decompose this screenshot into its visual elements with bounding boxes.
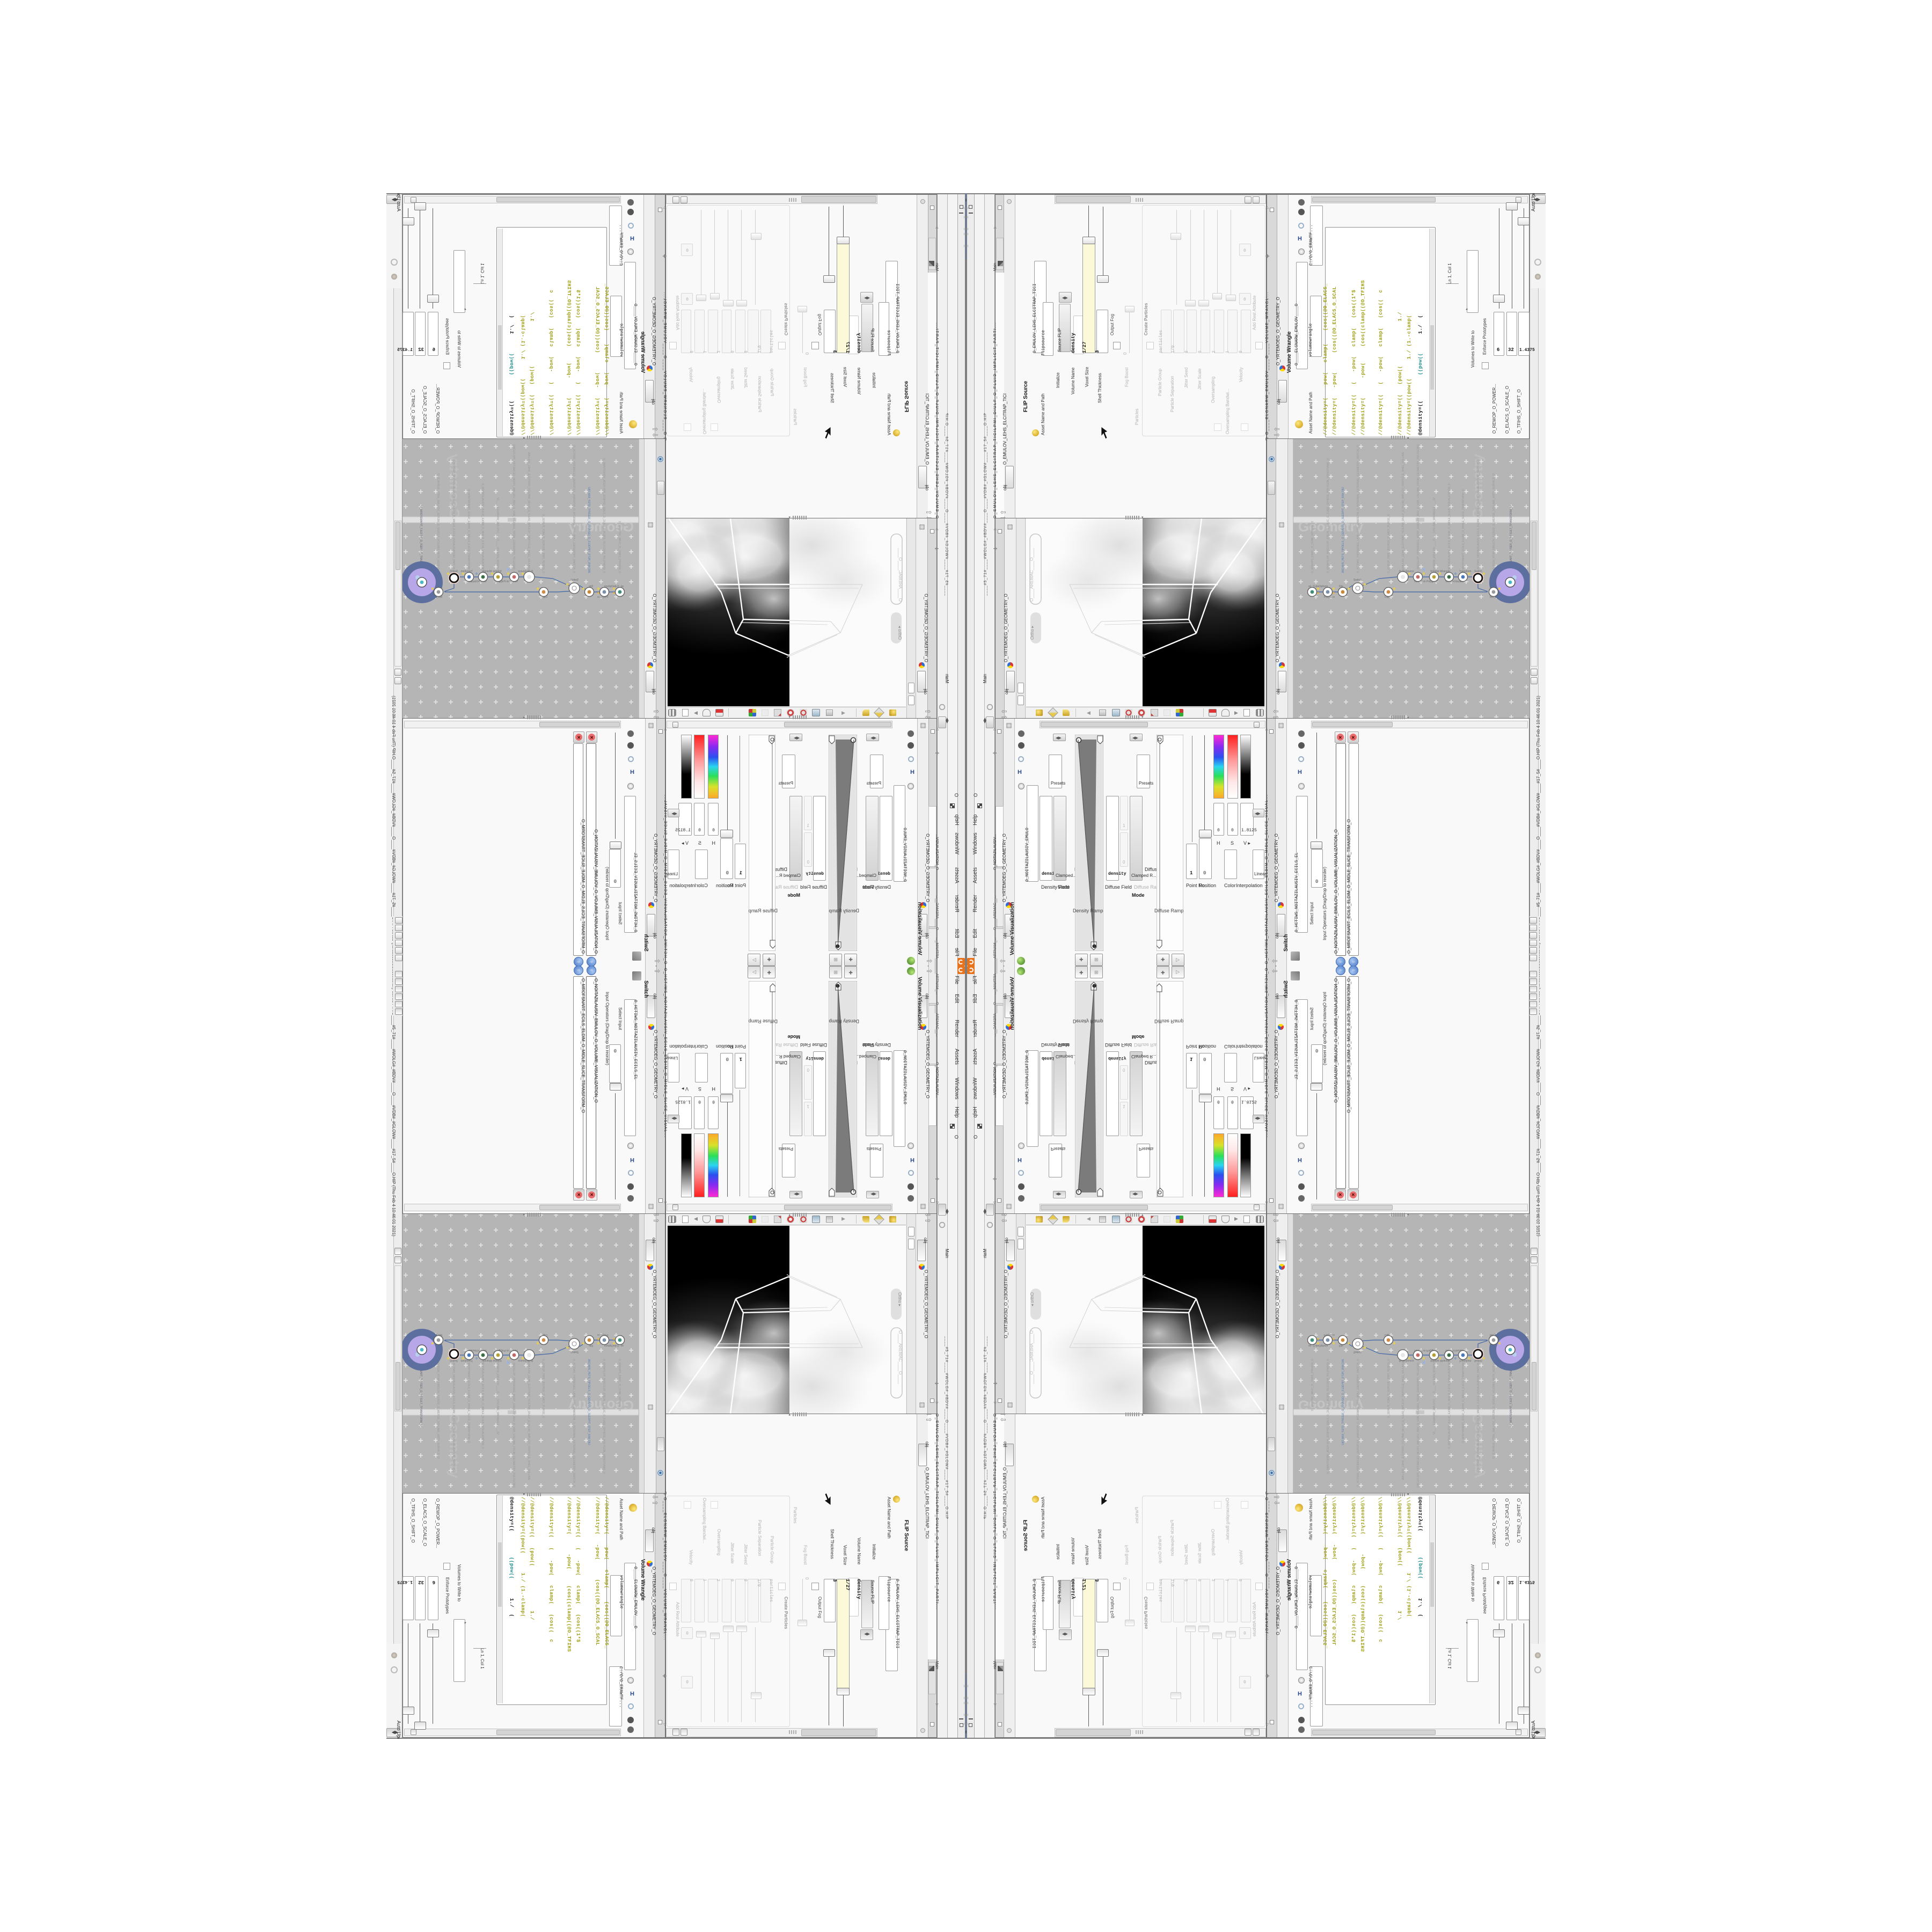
svg-text:JBO.M05_PETS_TIPOELS_O_GENUSS_: JBO.M05_PETS_TIPOELS_O_GENUSS_D_SLEDPIT_… xyxy=(1342,487,1345,573)
svg-text:O_HCTIWS_NOITAZILAUSIV_ECILS_E: O_HCTIWS_NOITAZILAUSIV_ECILS_ELDIM_O_MID… xyxy=(452,459,455,573)
svg-text:O_SNOGLOP_YRTEMOEG_MORF_EMULOV: O_SNOGLOP_YRTEMOEG_MORF_EMULOV_BDV_D_VDB… xyxy=(1417,444,1420,573)
svg-text:Switch: Switch xyxy=(570,579,579,582)
svg-text:O_EGRUP_RWE_JDUAGE_O_WER_PURGE: O_EGRUP_RWE_JDUAGE_O_WER_PURGE_O xyxy=(1387,514,1391,573)
svg-text:O_HCTIWS_NOITAZILAUSIV_ECILS_E: O_HCTIWS_NOITAZILAUSIV_ECILS_ELDIM_O_MID… xyxy=(452,1359,455,1473)
svg-text:O_EGRUP_RWE_JDUAGE_O_WER_PURGE: O_EGRUP_RWE_JDUAGE_O_WER_PURGE_O xyxy=(1387,1359,1391,1418)
svg-text:O_HCTIWS_NOITAZILAUSIV_ECILS_E: O_HCTIWS_NOITAZILAUSIV_ECILS_ELDIM_O_MID… xyxy=(1477,1359,1480,1473)
svg-text:JBO.M05_PETS_TIPOELS_O_GENUSS_: JBO.M05_PETS_TIPOELS_O_GENUSS_D_SLEDPIT_… xyxy=(587,487,590,573)
svg-text:O____AREMAC____O____: O____AREMAC____O____ xyxy=(1029,1330,1034,1385)
svg-text:O_EMULOV_LEHS_ELCITRAP_TICILPM: O_EMULOV_LEHS_ELCITRAP_TICILPMI_DIULF_D_… xyxy=(527,451,530,573)
svg-text:O_EMULOV_LEHS_ELCITRAP_TICILPM: O_EMULOV_LEHS_ELCITRAP_TICILPMI_DIULF_D_… xyxy=(527,1359,530,1481)
svg-text:JBO.M05_PETS_TIPOELS_O_GENUSS_: JBO.M05_PETS_TIPOELS_O_GENUSS_D_SLEDPIT_… xyxy=(1342,1359,1345,1445)
svg-text:O_EREHPS_EBUC_O_CUBE_SPHERE_O: O_EREHPS_EBUC_O_CUBE_SPHERE_O xyxy=(618,521,621,573)
svg-text:ELGNARW_EMULOV____O____VOLUME_: ELGNARW_EMULOV____O____VOLUME_WRANGLE___… xyxy=(1433,1359,1436,1435)
svg-text:Ortho ▸: Ortho ▸ xyxy=(897,626,902,640)
svg-text:O_NOITAZILAUSIV_ECILS_ELDIM_O_: O_NOITAZILAUSIV_ECILS_ELDIM_O_MIDLE_SLIC… xyxy=(481,1359,484,1449)
svg-text:O_EMULOV_LEHS_ELCITRAP_TICILPM: O_EMULOV_LEHS_ELCITRAP_TICILPMI_DIULF_D_… xyxy=(1402,451,1405,573)
svg-text:O_ERIWYLOP_NOGYLOP_EREHPS_EBUC: O_ERIWYLOP_NOGYLOP_EREHPS_EBUC_O_CUBE_SP… xyxy=(1327,1359,1330,1474)
svg-text:O_HCTIWS_YRTEMOEG_LANRETXE_LAN: O_HCTIWS_YRTEMOEG_LANRETXE_LANRETNI_O_IN… xyxy=(572,445,575,573)
svg-text:O_ERIWYLOP_NOGYLOP_EREHPS_EBUC: O_ERIWYLOP_NOGYLOP_EREHPS_EBUC_O_CUBE_SP… xyxy=(602,1359,605,1474)
svg-text:O_EGREM_HTIW_EMULOV_EGREM_O_ME: O_EGREM_HTIW_EMULOV_EGREM_O_MERGE_VOLUME… xyxy=(436,1359,440,1459)
svg-text:O_NOITAZILAUSIV_ECILS_ELDIM_O_: O_NOITAZILAUSIV_ECILS_ELDIM_O_MIDLE_SLIC… xyxy=(1448,1359,1451,1449)
svg-text:O_HCTIWS_YRTEMOEG_LANRETXE_LAN: O_HCTIWS_YRTEMOEG_LANRETXE_LANRETNI_O_IN… xyxy=(572,1359,575,1487)
svg-text:O_SNOGLOP_YRTEMOEG_MORF_EMULOV: O_SNOGLOP_YRTEMOEG_MORF_EMULOV_BDV_D_VDB… xyxy=(1417,1359,1420,1488)
svg-text:O_EGREM_HTIW_EMULOV_EGREM_O_ME: O_EGREM_HTIW_EMULOV_EGREM_O_MERGE_VOLUME… xyxy=(1492,473,1496,573)
svg-text:Switch: Switch xyxy=(1353,1350,1362,1353)
svg-text:O_SNOGLOP_YRTEMOEG_MORF_EMULOV: O_SNOGLOP_YRTEMOEG_MORF_EMULOV_BDV_D_VDB… xyxy=(512,1359,515,1488)
svg-text:O_EGRUP_RWE_JDUAGE_O_WER_PURGE: O_EGRUP_RWE_JDUAGE_O_WER_PURGE_O xyxy=(541,514,545,573)
svg-text:Switch: Switch xyxy=(1353,579,1362,582)
svg-text:O____AREMAC____O____: O____AREMAC____O____ xyxy=(898,1330,903,1385)
svg-text:O_SNOGLOP_YRTEMOEG_MORF_EMULOV: O_SNOGLOP_YRTEMOEG_MORF_EMULOV_BDV_D_VDB… xyxy=(512,444,515,573)
svg-text:O_EREHPS_EBUC_O_CUBE_SPHERE_O: O_EREHPS_EBUC_O_CUBE_SPHERE_O xyxy=(618,1359,621,1411)
svg-text:O_ERIWYLOP_NOGYLOP_EREHPS_EBUC: O_ERIWYLOP_NOGYLOP_EREHPS_EBUC_O_CUBE_SP… xyxy=(602,458,605,573)
svg-text:O_MROFSNART_ECILS_ELDIM_O_MIDL: O_MROFSNART_ECILS_ELDIM_O_MIDLE_SLICE_TR… xyxy=(1462,489,1465,573)
svg-text:ELGNARW_EMULOV____O____VOLUME_: ELGNARW_EMULOV____O____VOLUME_WRANGLE___… xyxy=(1433,497,1436,573)
svg-text:O_EGREM_HTIW_EMULOV_EGREM_O_ME: O_EGREM_HTIW_EMULOV_EGREM_O_MERGE_VOLUME… xyxy=(436,473,440,573)
svg-text:O_EREHPS_EBUC_O_CUBE_SPHERE_O: O_EREHPS_EBUC_O_CUBE_SPHERE_O xyxy=(1311,521,1314,573)
svg-text:O_EMULOV_LEHS_ELCITRAP_TICILPM: O_EMULOV_LEHS_ELCITRAP_TICILPMI_DIULF_D_… xyxy=(1402,1359,1405,1481)
svg-text:O_MROFSNART_ECILS_ELDIM_O_MIDL: O_MROFSNART_ECILS_ELDIM_O_MIDLE_SLICE_TR… xyxy=(467,489,470,573)
svg-text:ELGNARW_EMULOV____O____VOLUME_: ELGNARW_EMULOV____O____VOLUME_WRANGLE___… xyxy=(496,497,499,573)
svg-text:O_EREHPS_EBUC_O_CUBE_SPHERE_O: O_EREHPS_EBUC_O_CUBE_SPHERE_O xyxy=(1311,1359,1314,1411)
svg-text:O_ERIWYLOP_NOGYLOP_EREHPS_EBUC: O_ERIWYLOP_NOGYLOP_EREHPS_EBUC_O_CUBE_SP… xyxy=(1327,458,1330,573)
svg-text:Ortho ▸: Ortho ▸ xyxy=(1030,626,1035,640)
svg-text:O_MROFSNART_ECILS_ELDIM_O_MIDL: O_MROFSNART_ECILS_ELDIM_O_MIDLE_SLICE_TR… xyxy=(1462,1359,1465,1443)
svg-text:O____AREMAC____O____: O____AREMAC____O____ xyxy=(1029,547,1034,602)
svg-text:Ortho ▸: Ortho ▸ xyxy=(1030,1292,1035,1306)
svg-text:O_MROFSNART_ECILS_ELDIM_O_MIDL: O_MROFSNART_ECILS_ELDIM_O_MIDLE_SLICE_TR… xyxy=(467,1359,470,1443)
svg-text:O____AREMAC____O____: O____AREMAC____O____ xyxy=(898,547,903,602)
svg-text:O_NOITAZILAUSIV_ECILS_ELDIM_O_: O_NOITAZILAUSIV_ECILS_ELDIM_O_MIDLE_SLIC… xyxy=(1448,483,1451,573)
svg-text:O_EGREM_HTIW_EMULOV_EGREM_O_ME: O_EGREM_HTIW_EMULOV_EGREM_O_MERGE_VOLUME… xyxy=(1492,1359,1496,1459)
svg-text:O_NOITAZILAUSIV_ECILS_ELDIM_O_: O_NOITAZILAUSIV_ECILS_ELDIM_O_MIDLE_SLIC… xyxy=(481,483,484,573)
svg-text:O_EGRUP_RWE_JDUAGE_O_WER_PURGE: O_EGRUP_RWE_JDUAGE_O_WER_PURGE_O xyxy=(541,1359,545,1418)
svg-text:O_HCTIWS_YRTEMOEG_LANRETXE_LAN: O_HCTIWS_YRTEMOEG_LANRETXE_LANRETNI_O_IN… xyxy=(1357,1359,1360,1487)
svg-text:Ortho ▸: Ortho ▸ xyxy=(897,1292,902,1306)
svg-text:Switch: Switch xyxy=(570,1350,579,1353)
svg-text:O_HCTIWS_YRTEMOEG_LANRETXE_LAN: O_HCTIWS_YRTEMOEG_LANRETXE_LANRETNI_O_IN… xyxy=(1357,445,1360,573)
svg-text:O_HCTIWS_NOITAZILAUSIV_ECILS_E: O_HCTIWS_NOITAZILAUSIV_ECILS_ELDIM_O_MID… xyxy=(1477,459,1480,573)
svg-text:JBO.M05_PETS_TIPOELS_O_GENUSS_: JBO.M05_PETS_TIPOELS_O_GENUSS_D_SLEDPIT_… xyxy=(587,1359,590,1445)
svg-text:ELGNARW_EMULOV____O____VOLUME_: ELGNARW_EMULOV____O____VOLUME_WRANGLE___… xyxy=(496,1359,499,1435)
